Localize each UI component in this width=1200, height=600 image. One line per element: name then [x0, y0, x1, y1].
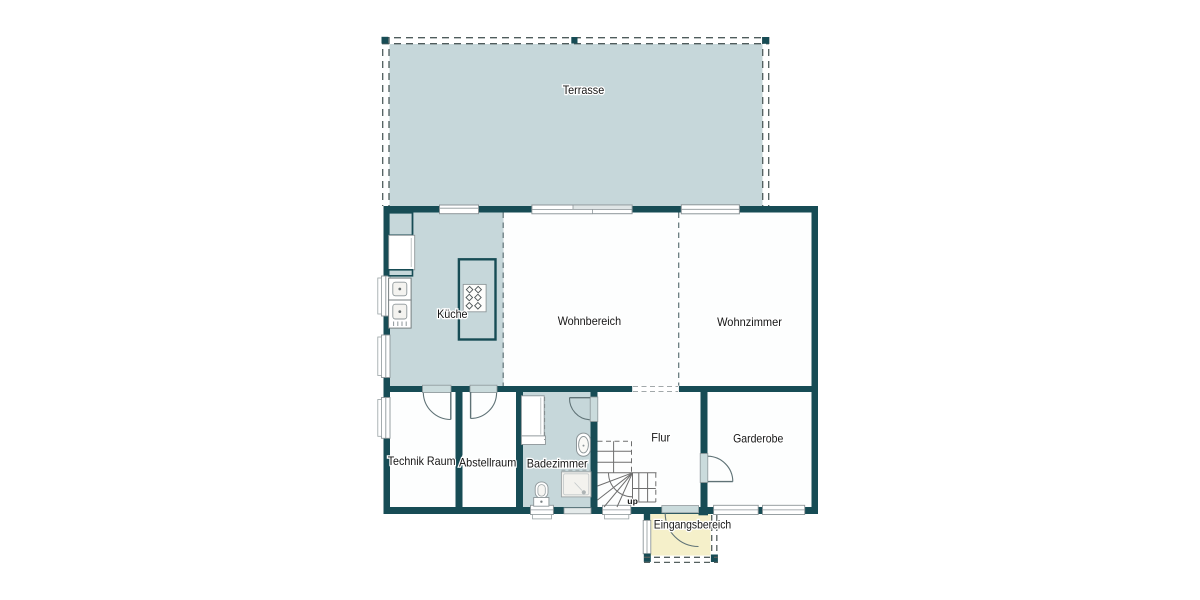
svg-text:Badezimmer: Badezimmer — [527, 457, 588, 470]
svg-text:Küche: Küche — [437, 308, 467, 321]
svg-text:up: up — [627, 497, 638, 506]
svg-text:Wohnbereich: Wohnbereich — [558, 315, 621, 328]
svg-text:Abstellraum: Abstellraum — [459, 456, 516, 469]
svg-text:Garderobe: Garderobe — [733, 433, 783, 446]
svg-text:Terrasse: Terrasse — [563, 84, 605, 97]
svg-text:Wohnzimmer: Wohnzimmer — [717, 316, 782, 329]
svg-text:Flur: Flur — [651, 431, 670, 444]
svg-text:Eingangsbereich: Eingangsbereich — [654, 519, 731, 532]
svg-text:Technik Raum: Technik Raum — [388, 455, 456, 468]
